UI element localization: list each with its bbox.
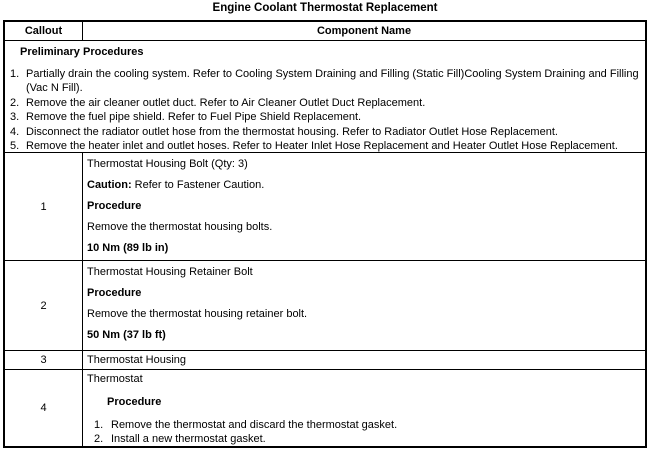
component-cell: Thermostat Housing: [83, 351, 645, 369]
table-row: 3 Thermostat Housing: [5, 351, 645, 370]
list-item: 1. Partially drain the cooling system. R…: [10, 67, 640, 96]
list-item-number: 1.: [94, 418, 111, 432]
callout-number: 2: [5, 261, 83, 350]
list-item-text: Remove the heater inlet and outlet hoses…: [26, 139, 640, 153]
table-row: 2 Thermostat Housing Retainer Bolt Proce…: [5, 261, 645, 351]
list-item-text: Disconnect the radiator outlet hose from…: [26, 125, 640, 139]
component-name: Thermostat Housing: [87, 354, 186, 366]
callout-number: 1: [5, 153, 83, 260]
list-item-number: 4.: [10, 125, 26, 139]
document-page: Engine Coolant Thermostat Replacement Ca…: [0, 0, 650, 450]
table-header-row: Callout Component Name: [5, 22, 645, 41]
page-title: Engine Coolant Thermostat Replacement: [0, 2, 650, 14]
component-name: Thermostat: [87, 372, 641, 386]
list-item-number: 3.: [10, 110, 26, 124]
component-table: Callout Component Name Preliminary Proce…: [3, 20, 647, 448]
table-row: 4 Thermostat Procedure 1. Remove the the…: [5, 370, 645, 446]
list-item-text: Install a new thermostat gasket.: [111, 432, 641, 446]
list-item-text: Remove the air cleaner outlet duct. Refe…: [26, 96, 640, 110]
list-item-text: Remove the thermostat and discard the th…: [111, 418, 641, 432]
list-item: 2. Remove the air cleaner outlet duct. R…: [10, 96, 640, 110]
procedure-label: Procedure: [107, 395, 641, 409]
list-item-number: 2.: [10, 96, 26, 110]
component-cell: Thermostat Housing Retainer Bolt Procedu…: [83, 261, 645, 350]
list-item-number: 5.: [10, 139, 26, 153]
procedure-label: Procedure: [87, 286, 641, 300]
list-item-number: 1.: [10, 67, 26, 96]
preliminary-procedures-row: Preliminary Procedures 1. Partially drai…: [5, 41, 645, 153]
list-item: 5. Remove the heater inlet and outlet ho…: [10, 139, 640, 153]
torque-spec: 10 Nm (89 lb in): [87, 241, 641, 255]
preliminary-procedures-heading: Preliminary Procedures: [20, 46, 640, 58]
list-item: 1. Remove the thermostat and discard the…: [94, 418, 641, 432]
callout-number: 3: [5, 351, 83, 369]
procedure-steps-list: 1. Remove the thermostat and discard the…: [87, 418, 641, 446]
procedure-label: Procedure: [87, 199, 641, 213]
component-cell: Thermostat Procedure 1. Remove the therm…: [83, 370, 645, 446]
list-item: 3. Remove the fuel pipe shield. Refer to…: [10, 110, 640, 124]
caution-line: Caution: Refer to Fastener Caution.: [87, 178, 641, 192]
caution-label: Caution:: [87, 179, 132, 191]
list-item-number: 2.: [94, 432, 111, 446]
column-header-component-name: Component Name: [83, 22, 645, 40]
table-row: 1 Thermostat Housing Bolt (Qty: 3) Cauti…: [5, 153, 645, 261]
procedure-step: Remove the thermostat housing retainer b…: [87, 307, 641, 321]
callout-number: 4: [5, 370, 83, 446]
list-item-text: Remove the fuel pipe shield. Refer to Fu…: [26, 110, 640, 124]
component-cell: Thermostat Housing Bolt (Qty: 3) Caution…: [83, 153, 645, 260]
column-header-callout: Callout: [5, 22, 83, 40]
list-item-text: Partially drain the cooling system. Refe…: [26, 67, 640, 96]
list-item: 4. Disconnect the radiator outlet hose f…: [10, 125, 640, 139]
component-name: Thermostat Housing Bolt (Qty: 3): [87, 157, 641, 171]
list-item: 2. Install a new thermostat gasket.: [94, 432, 641, 446]
caution-text: Refer to Fastener Caution.: [132, 179, 265, 191]
component-name: Thermostat Housing Retainer Bolt: [87, 265, 641, 279]
torque-spec: 50 Nm (37 lb ft): [87, 328, 641, 342]
procedure-step: Remove the thermostat housing bolts.: [87, 220, 641, 234]
